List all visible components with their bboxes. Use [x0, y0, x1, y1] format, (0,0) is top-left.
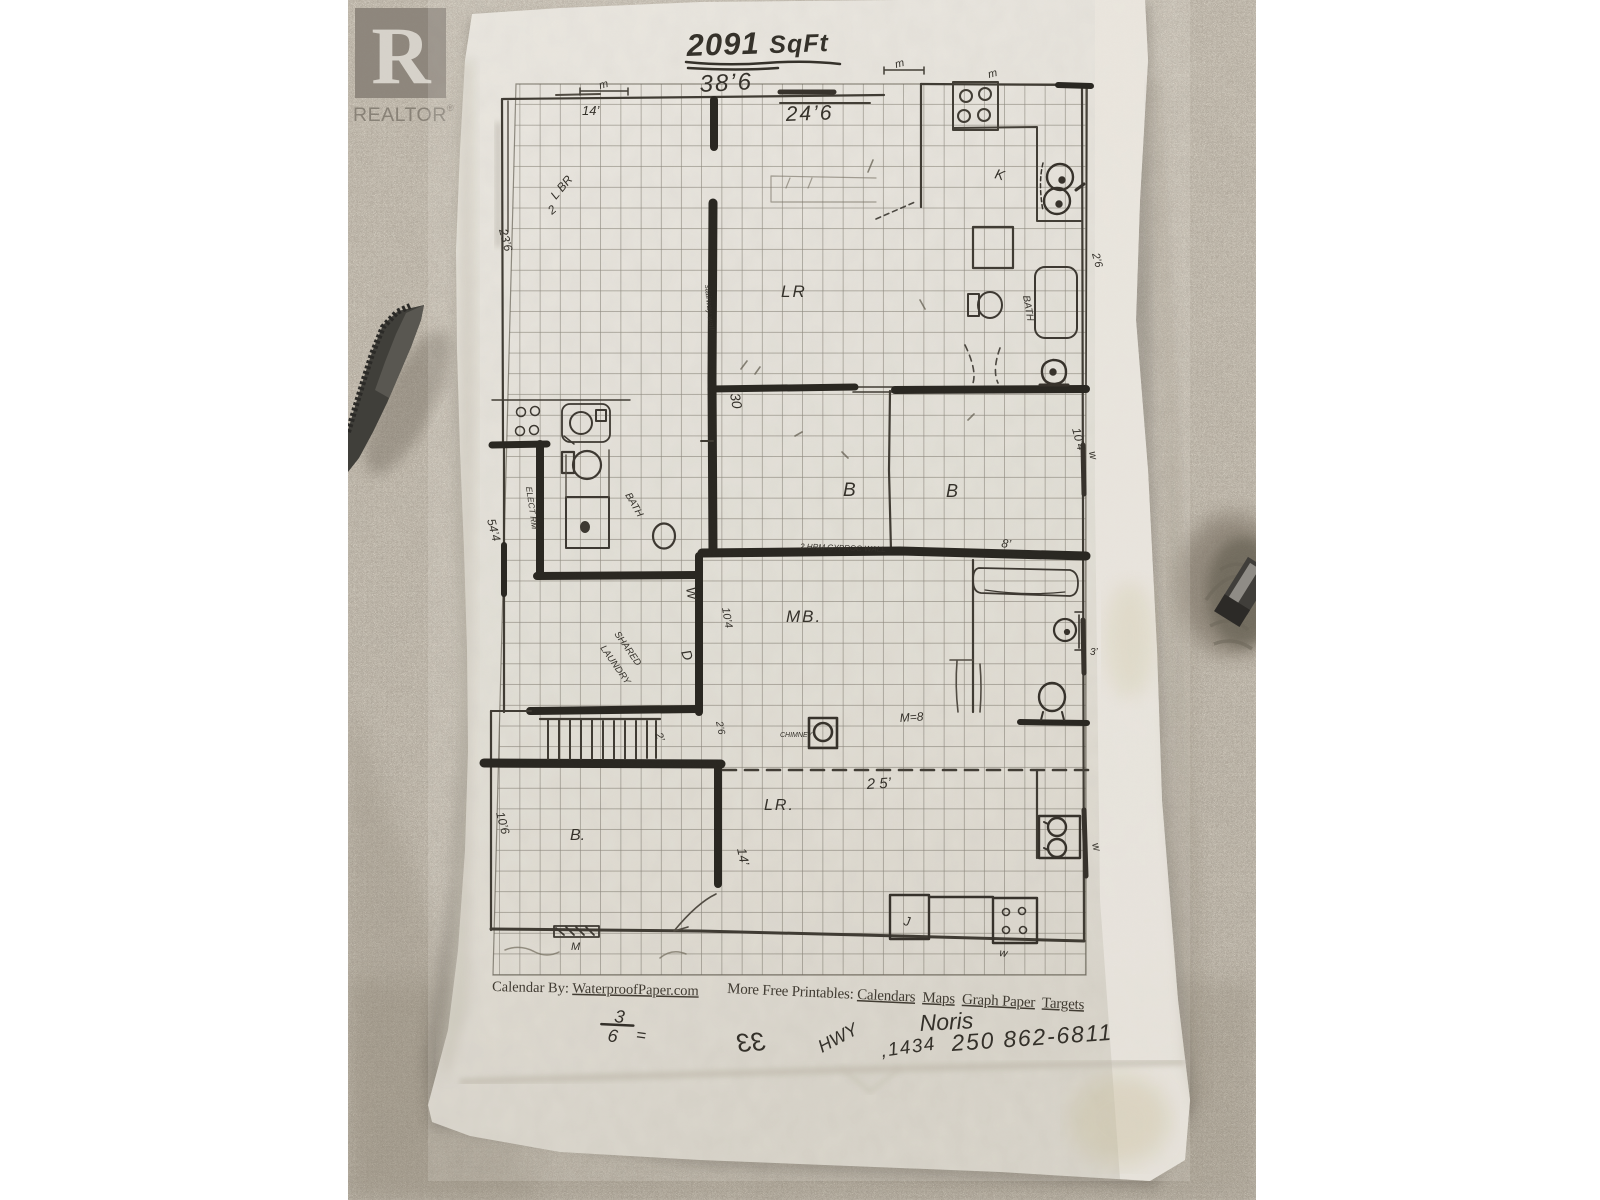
svg-text:B.: B. [570, 827, 585, 844]
svg-text:M: M [571, 941, 581, 953]
svg-text:38’6: 38’6 [699, 68, 754, 98]
svg-text:14’: 14’ [582, 103, 600, 118]
svg-text:CHIMNEY: CHIMNEY [780, 732, 814, 739]
svg-text:33: 33 [735, 1026, 766, 1058]
svg-text:30: 30 [727, 392, 745, 410]
svg-text:B: B [946, 481, 958, 501]
svg-text:24’6: 24’6 [784, 101, 833, 126]
svg-text:R: R [371, 10, 431, 101]
svg-text:LR: LR [781, 282, 807, 301]
svg-text:LR.: LR. [764, 797, 795, 814]
svg-text:®: ® [447, 103, 454, 113]
svg-text:B: B [843, 480, 856, 501]
svg-text:M=8: M=8 [899, 709, 924, 725]
svg-text:2091 SqFt: 2091 SqFt [685, 23, 830, 63]
svg-text:MB.: MB. [786, 607, 822, 626]
svg-text:2 5’: 2 5’ [865, 775, 892, 793]
svg-text:REALTOR: REALTOR [353, 104, 447, 126]
svg-text:3’: 3’ [1090, 647, 1099, 658]
